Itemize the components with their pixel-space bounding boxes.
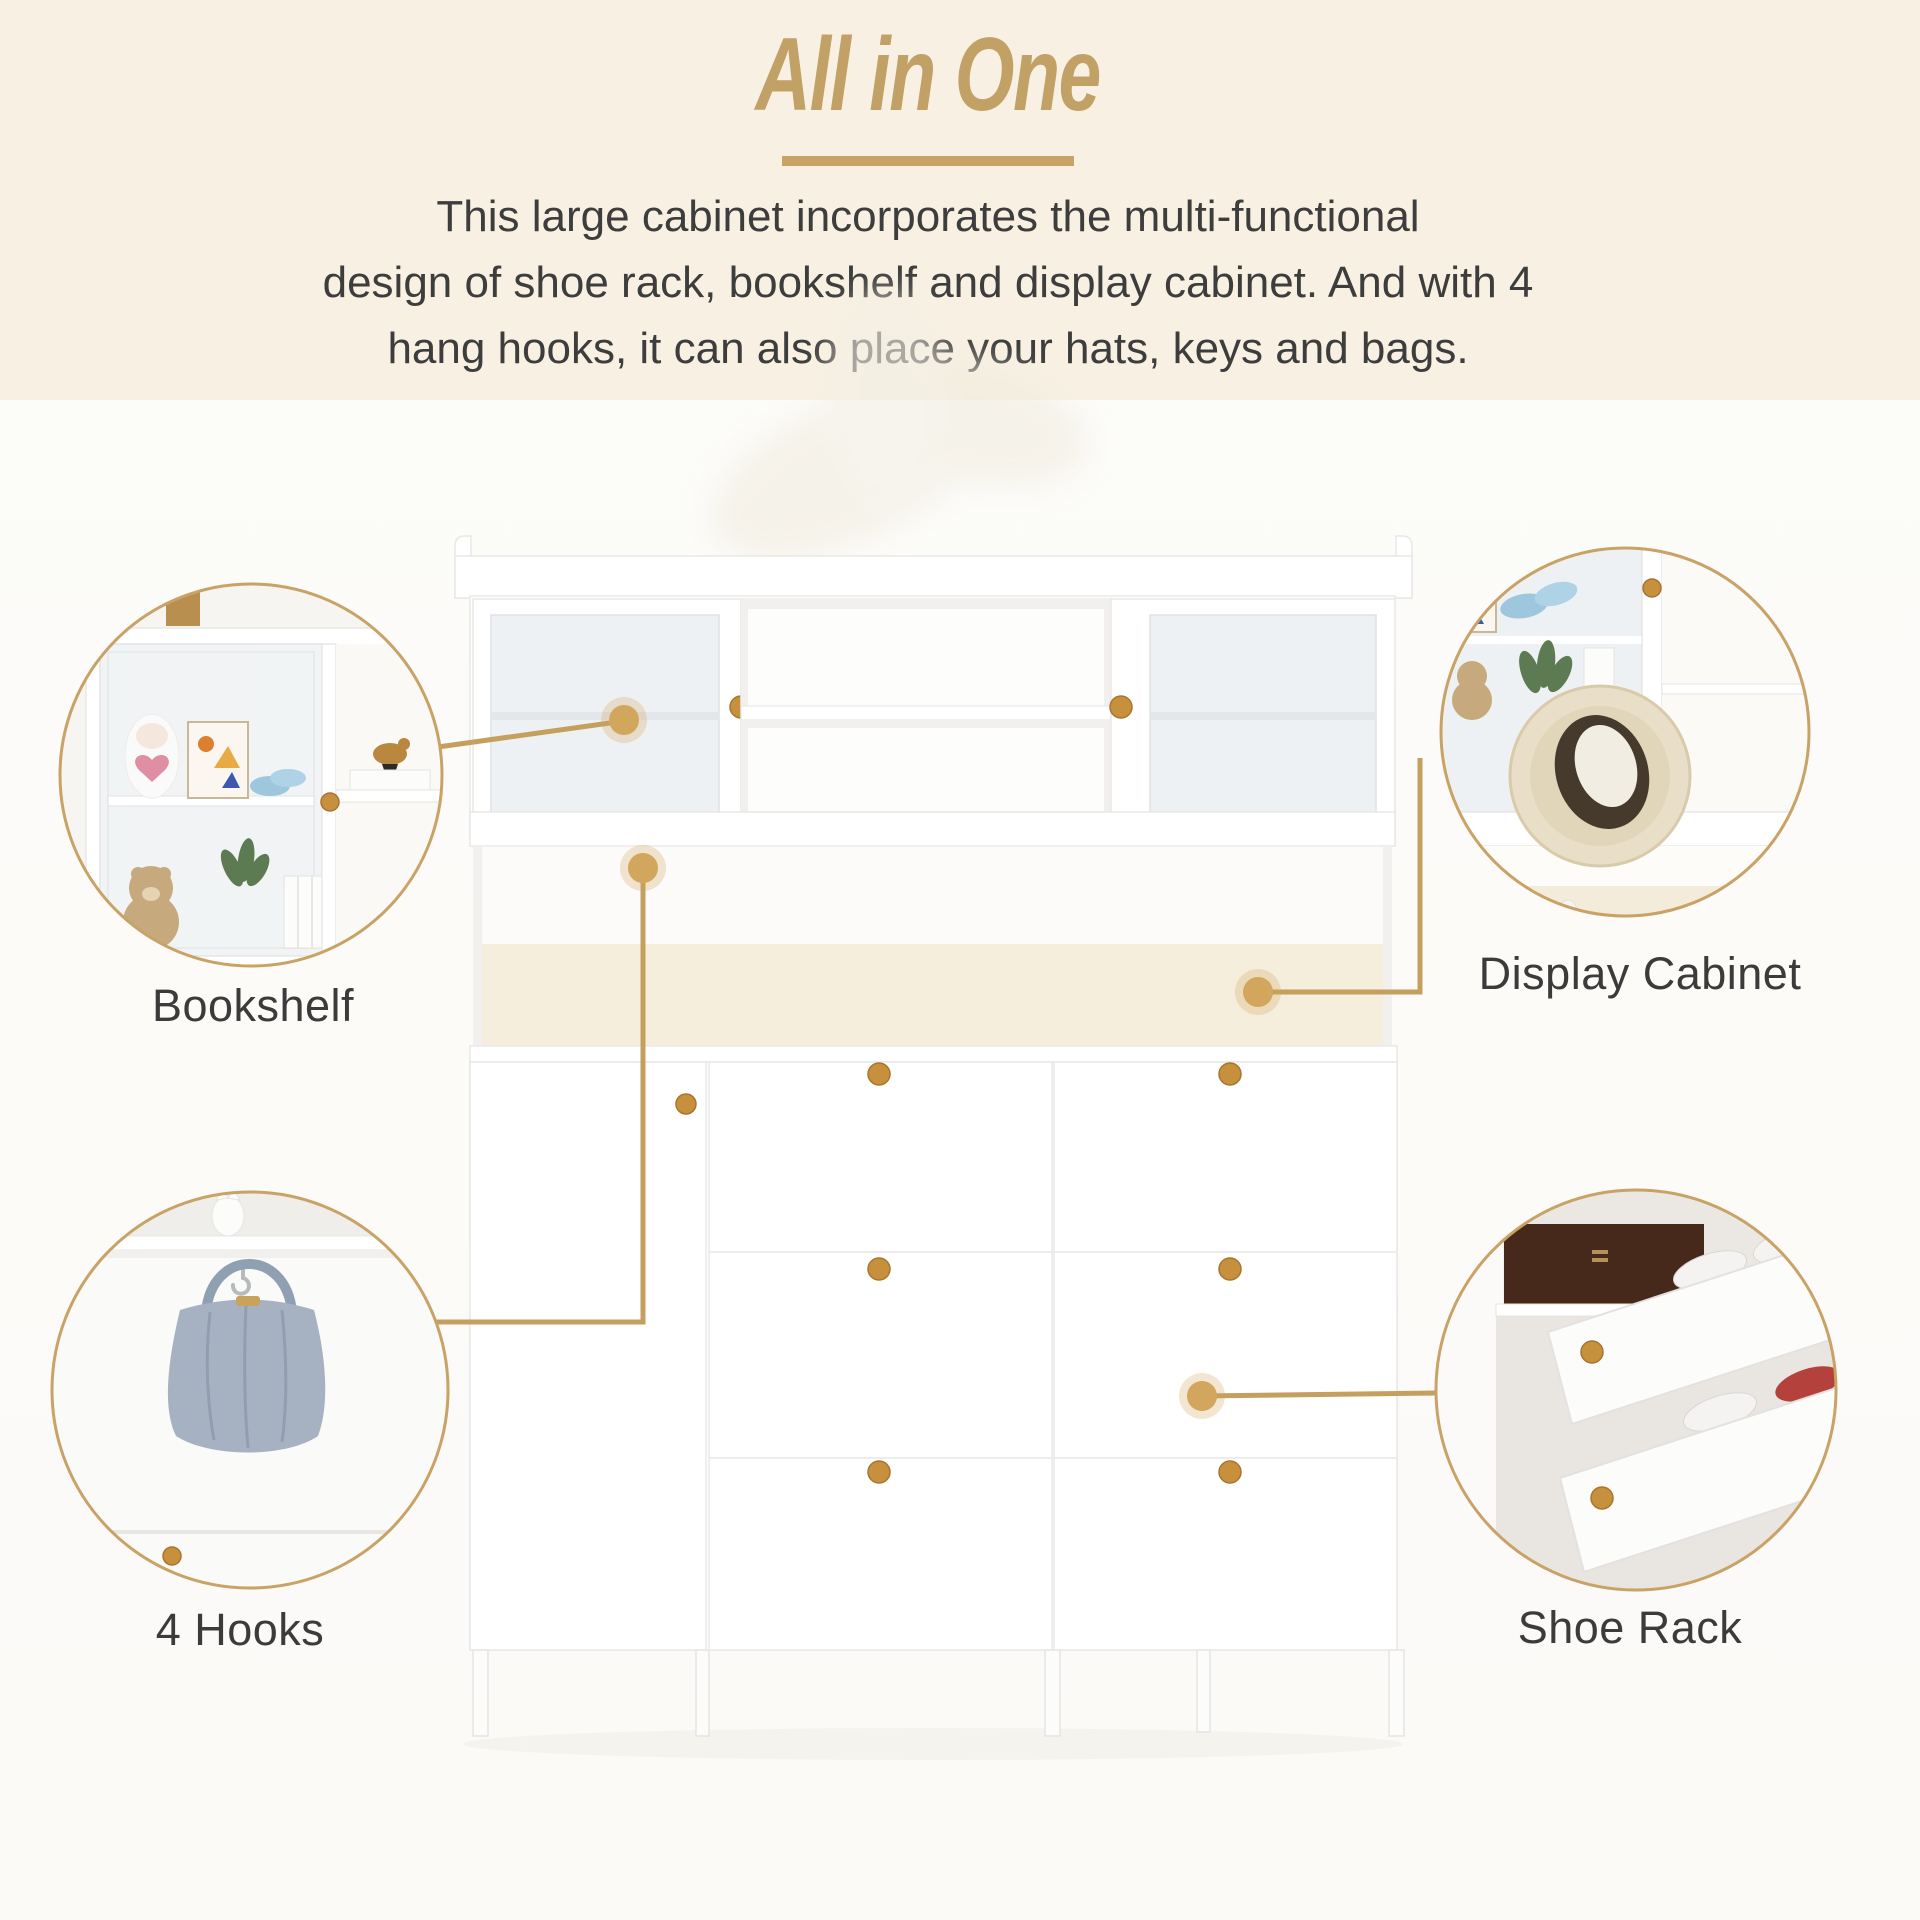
hutch-right-glass — [1150, 615, 1376, 829]
cabinet-legs — [473, 1650, 1404, 1736]
display-cabinet-callout-circle — [1439, 546, 1823, 1092]
base-left-door-knob — [676, 1094, 696, 1114]
cabinet — [455, 536, 1412, 1760]
floor-shadow — [463, 1728, 1403, 1760]
bookshelf-dot — [609, 705, 639, 735]
bookshelf-callout-circle — [58, 482, 448, 972]
counter-top — [470, 1046, 1397, 1062]
hooks-callout-circle — [50, 1190, 450, 1590]
shoe-rack-dot — [1187, 1381, 1217, 1411]
display-cabinet-photo — [1439, 546, 1823, 1092]
hooks-label: 4 Hooks — [156, 1604, 325, 1656]
open-niche — [474, 846, 1391, 1046]
bookshelf-label: Bookshelf — [152, 980, 354, 1032]
product-infographic: All in One This large cabinet incorporat… — [0, 0, 1920, 1920]
right-drawer-3-knob — [1219, 1461, 1241, 1483]
center-drawer-1-knob — [868, 1063, 890, 1085]
display-cabinet-dot — [1243, 977, 1273, 1007]
shoe-rack-label: Shoe Rack — [1518, 1602, 1743, 1654]
shoe-rack-callout-circle — [1434, 1188, 1920, 1596]
center-drawer-column — [709, 1062, 1052, 1650]
right-drawer-1-knob — [1219, 1063, 1241, 1085]
background-plant-silhouette — [684, 290, 1101, 597]
center-drawer-1 — [709, 1062, 1052, 1252]
center-drawer-2-knob — [868, 1258, 890, 1280]
hook-rail — [470, 812, 1395, 846]
hutch-center-shelves — [741, 599, 1111, 819]
display-cabinet-label: Display Cabinet — [1479, 948, 1802, 1000]
crown-board — [455, 556, 1412, 598]
center-drawer-3-knob — [868, 1461, 890, 1483]
hooks-dot — [628, 853, 658, 883]
right-drawer-2-knob — [1219, 1258, 1241, 1280]
hutch-center-shelf — [741, 706, 1111, 720]
base-left-door — [470, 1062, 706, 1650]
right-drawer-1 — [1054, 1062, 1397, 1252]
right-drawer-2 — [1054, 1252, 1397, 1458]
center-drawer-2 — [709, 1252, 1052, 1458]
right-drawer-column — [1054, 1062, 1397, 1650]
base-cabinet — [470, 1062, 1397, 1650]
hutch-right-knob — [1110, 696, 1132, 718]
hutch-right-glass-door — [1110, 599, 1395, 843]
shoe-rack-photo — [1434, 1188, 1920, 1596]
bookshelf-photo — [58, 482, 448, 972]
right-drawer-3 — [1054, 1458, 1397, 1650]
center-drawer-3 — [709, 1458, 1052, 1650]
